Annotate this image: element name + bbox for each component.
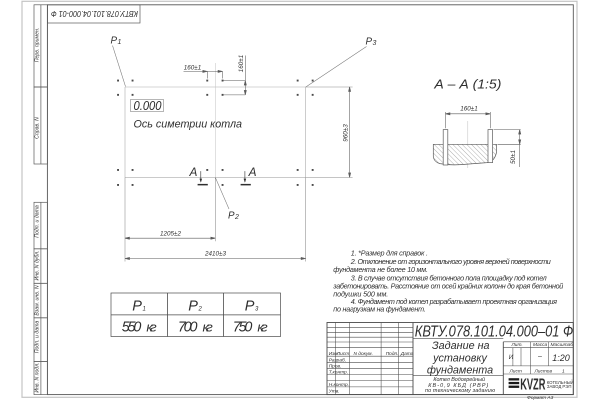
svg-text:1205±2: 1205±2	[160, 230, 181, 237]
svg-text:по техническому заданию: по техническому заданию	[425, 388, 495, 394]
svg-text:Лист: Лист	[509, 369, 522, 375]
svg-text:кг: кг	[257, 319, 268, 334]
svg-text:Инв. N подл.: Инв. N подл.	[35, 362, 41, 392]
svg-text:фундамента: фундамента	[427, 365, 493, 377]
svg-text:Дата: Дата	[400, 351, 414, 357]
svg-text:А – А (1:5): А – А (1:5)	[433, 77, 501, 92]
svg-text:Т.контр.: Т.контр.	[329, 370, 348, 376]
svg-text:–: –	[537, 354, 542, 361]
svg-text:960±3: 960±3	[342, 124, 349, 142]
svg-text:Р: Р	[366, 37, 373, 48]
svg-text:ЗАВОД РЭП: ЗАВОД РЭП	[547, 384, 572, 389]
svg-text:Подп. и дата: Подп. и дата	[35, 205, 41, 238]
svg-text:Р: Р	[228, 210, 235, 221]
svg-text:2410±3: 2410±3	[204, 251, 226, 258]
svg-text:160±1: 160±1	[460, 105, 477, 112]
svg-text:Инв. N дубл.: Инв. N дубл.	[35, 250, 41, 280]
svg-text:Перв. примен.: Перв. примен.	[35, 28, 41, 62]
svg-text:Ось симетрии котла: Ось симетрии котла	[134, 118, 243, 130]
svg-text:по нагрузкам на фундамент.: по нагрузкам на фундамент.	[333, 305, 426, 314]
svg-text:Р: Р	[132, 298, 142, 314]
svg-text:А: А	[189, 165, 198, 179]
svg-text:Р: Р	[111, 36, 118, 47]
svg-text:Взам. инв. N: Взам. инв. N	[35, 285, 41, 315]
svg-text:кг: кг	[203, 319, 214, 334]
svg-text:Масса: Масса	[533, 342, 548, 348]
svg-text:1: 1	[118, 39, 122, 46]
svg-text:КВТУ.078.101.04.000-01 Ф: КВТУ.078.101.04.000-01 Ф	[51, 9, 138, 19]
svg-text:КВТУ.078.101.04.000–01 Ф: КВТУ.078.101.04.000–01 Ф	[415, 323, 574, 340]
svg-text:Лит.: Лит.	[511, 342, 523, 348]
svg-text:160±1: 160±1	[184, 64, 201, 71]
svg-text:2: 2	[198, 307, 203, 313]
svg-text:1:20: 1:20	[552, 353, 570, 363]
svg-text:1: 1	[562, 369, 565, 375]
svg-text:установку: установку	[432, 352, 487, 364]
svg-text:И: И	[509, 354, 514, 361]
svg-text:Р: Р	[245, 298, 255, 314]
svg-text:Пров.: Пров.	[329, 364, 342, 370]
svg-text:Утв.: Утв.	[329, 388, 340, 394]
svg-text:кг: кг	[146, 319, 157, 334]
svg-text:0.000: 0.000	[134, 99, 162, 113]
svg-text:Р: Р	[188, 298, 198, 314]
svg-text:160±1: 160±1	[238, 55, 245, 72]
svg-text:750: 750	[233, 319, 253, 335]
svg-text:Листов: Листов	[534, 369, 553, 375]
svg-text:Лист: Лист	[336, 351, 349, 357]
svg-text:А: А	[248, 165, 257, 179]
svg-text:Формат А3: Формат А3	[527, 395, 554, 400]
svg-text:Задание на: Задание на	[432, 340, 490, 352]
svg-text:Масштаб: Масштаб	[551, 342, 574, 348]
svg-text:Разраб.: Разраб.	[329, 358, 346, 364]
svg-text:N докум.: N докум.	[354, 351, 373, 357]
svg-text:Н.контр.: Н.контр.	[329, 382, 349, 388]
svg-text:Подп.: Подп.	[386, 351, 399, 357]
svg-text:Справ. N: Справ. N	[35, 117, 41, 139]
svg-text:KVZR: KVZR	[520, 377, 545, 394]
svg-text:50±1: 50±1	[510, 150, 517, 164]
svg-text:2: 2	[234, 214, 239, 221]
svg-text:1. *Размер для справок .: 1. *Размер для справок .	[351, 248, 428, 257]
svg-text:Подп. и дата: Подп. и дата	[35, 321, 41, 354]
svg-text:550: 550	[122, 319, 142, 335]
svg-text:1: 1	[143, 307, 146, 313]
svg-text:700: 700	[178, 319, 198, 335]
svg-text:3: 3	[373, 40, 377, 47]
